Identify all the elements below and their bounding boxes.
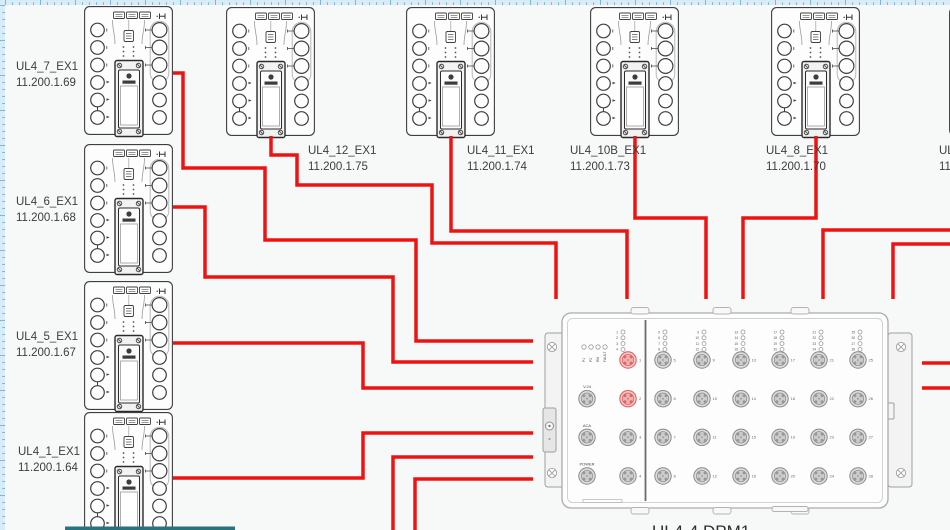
device-ul4-10b-ex1[interactable] <box>591 8 679 138</box>
device-label-ul4-12-ex1: UL4_12_EX1 11.200.1.75 <box>308 144 376 175</box>
status-led-p2 <box>589 345 593 349</box>
vertical-ruler <box>0 0 5 530</box>
status-led-p1 <box>582 345 586 349</box>
device-label-ul4-right-partial: UL 11 <box>939 144 950 175</box>
dpm-port-17[interactable] <box>772 352 788 368</box>
wire-right-offscreen-1[interactable] <box>823 230 950 299</box>
port-number: 15 <box>752 435 757 440</box>
device-label-ul4-7-ex1: UL4_7_EX1 11.200.1.69 <box>16 60 78 91</box>
wire-ul4-5-to-dpm[interactable] <box>173 343 533 388</box>
led-number: 8 <box>658 348 660 352</box>
dpm-port-28[interactable] <box>850 468 866 484</box>
device-label-ul4-6-ex1: UL4_6_EX1 11.200.1.68 <box>16 195 78 226</box>
dpm-port-22[interactable] <box>811 391 827 407</box>
dpm-port-3[interactable] <box>620 429 636 445</box>
partial-object-bottom-edge[interactable] <box>65 527 235 530</box>
dpm-port-2[interactable] <box>620 391 636 407</box>
dpm-port-v24[interactable] <box>579 391 595 407</box>
dpm-port-7[interactable] <box>655 429 671 445</box>
port-number: 28 <box>869 473 874 478</box>
dpm-port-26[interactable] <box>850 391 866 407</box>
port-number: 25 <box>869 357 874 362</box>
led-number: 2 <box>616 336 618 340</box>
dpm-port-aca[interactable] <box>579 429 595 445</box>
dpm-port-19[interactable] <box>772 429 788 445</box>
led-number: 11 <box>696 342 700 346</box>
device-label-ul4-5-ex1: UL4_5_EX1 11.200.1.67 <box>16 330 78 361</box>
device-ul4-7-ex1[interactable] <box>85 7 173 137</box>
led-number: 13 <box>734 330 738 334</box>
dpm-port-27[interactable] <box>850 429 866 445</box>
led-number: 23 <box>812 342 816 346</box>
port-number: 21 <box>830 357 835 362</box>
dpm-port-9[interactable] <box>694 352 710 368</box>
led-number: 22 <box>812 336 816 340</box>
device-ul4-1-ex1[interactable] <box>85 413 173 530</box>
port-number: 27 <box>869 435 874 440</box>
status-led-label: P1 <box>582 358 586 362</box>
led-number: 4 <box>616 348 618 352</box>
device-ul4-11-ex1[interactable] <box>407 8 495 138</box>
dpm-port-18[interactable] <box>772 391 788 407</box>
device-ul4-8-ex1[interactable] <box>772 8 860 138</box>
port-number: 17 <box>791 357 796 362</box>
device-ul4-12-ex1[interactable] <box>227 8 315 138</box>
led-number: 17 <box>773 330 777 334</box>
device-dpm1[interactable]: P1P2RMFAULT1234V.24ACAPOWER1234556677889… <box>543 308 912 515</box>
aux-port-label: POWER <box>579 462 594 467</box>
port-number: 22 <box>830 396 835 401</box>
dpm-port-power[interactable] <box>579 468 595 484</box>
port-number: 12 <box>713 473 718 478</box>
dpm-port-23[interactable] <box>811 429 827 445</box>
led-number: 19 <box>773 342 777 346</box>
wire-bottom-offscreen-2[interactable] <box>415 479 533 530</box>
port-number: 24 <box>830 473 835 478</box>
wire-right-offscreen-2[interactable] <box>893 244 950 299</box>
dpm-port-20[interactable] <box>772 468 788 484</box>
port-number: 23 <box>830 435 835 440</box>
port-number: 18 <box>791 396 796 401</box>
led-number: 24 <box>812 348 816 352</box>
led-number: 21 <box>812 330 816 334</box>
dpm-port-4[interactable] <box>620 468 636 484</box>
dpm-port-6[interactable] <box>655 391 671 407</box>
led-number: 1 <box>616 330 618 334</box>
dpm-port-5[interactable] <box>655 352 671 368</box>
led-number: 26 <box>851 336 855 340</box>
port-number: 16 <box>752 473 757 478</box>
dpm-port-1[interactable] <box>620 352 636 368</box>
led-number: 16 <box>734 348 738 352</box>
led-number: 7 <box>658 342 660 346</box>
port-number: 10 <box>713 396 718 401</box>
port-number: 20 <box>791 473 796 478</box>
led-number: 14 <box>734 336 738 340</box>
led-number: 15 <box>734 342 738 346</box>
led-number: 10 <box>695 336 699 340</box>
dpm-port-15[interactable] <box>733 429 749 445</box>
led-number: 5 <box>658 330 660 334</box>
led-number: 6 <box>658 336 660 340</box>
status-led-label: FAULT <box>603 352 607 362</box>
dpm-port-8[interactable] <box>655 468 671 484</box>
dpm-port-14[interactable] <box>733 391 749 407</box>
status-led-label: RM <box>596 357 600 362</box>
port-number: 13 <box>752 357 757 362</box>
device-label-ul4-8-ex1: UL4_8_EX1 11.200.1.70 <box>766 144 828 175</box>
dpm-port-12[interactable] <box>694 468 710 484</box>
led-number: 28 <box>851 348 855 352</box>
port-number: 26 <box>869 396 874 401</box>
dpm-port-16[interactable] <box>733 468 749 484</box>
device-ul4-5-ex1[interactable] <box>85 282 173 412</box>
dpm-port-10[interactable] <box>694 391 710 407</box>
dpm-port-21[interactable] <box>811 352 827 368</box>
led-number: 27 <box>851 342 855 346</box>
port-number: 19 <box>791 435 796 440</box>
device-ul4-6-ex1[interactable] <box>85 145 173 275</box>
aux-port-label: V.24 <box>583 384 592 389</box>
led-number: 9 <box>697 330 699 334</box>
horizontal-ruler <box>0 0 950 5</box>
diagram-scene: P1P2RMFAULT1234V.24ACAPOWER1234556677889… <box>0 0 950 530</box>
status-led-rm <box>596 345 600 349</box>
led-number: 20 <box>773 348 777 352</box>
dpm-device-label: UL4-4 DPM1 <box>652 522 750 530</box>
aux-port-label: ACA <box>583 423 592 428</box>
dpm-port-11[interactable] <box>694 429 710 445</box>
dpm-port-25[interactable] <box>850 352 866 368</box>
status-led-label: P2 <box>589 358 593 362</box>
led-number: 3 <box>616 342 618 346</box>
status-led-fault <box>603 345 607 349</box>
diagram-canvas[interactable]: P1P2RMFAULT1234V.24ACAPOWER1234556677889… <box>0 0 950 530</box>
led-number: 18 <box>773 336 777 340</box>
dpm-port-13[interactable] <box>733 352 749 368</box>
port-number: 14 <box>752 396 757 401</box>
led-number: 12 <box>695 348 699 352</box>
led-number: 25 <box>851 330 855 334</box>
device-label-ul4-10b-ex1: UL4_10B_EX1 11.200.1.73 <box>570 144 646 175</box>
device-label-ul4-11-ex1: UL4_11_EX1 11.200.1.74 <box>467 144 535 175</box>
device-label-ul4-1-ex1: UL4_1_EX1 11.200.1.64 <box>18 445 80 476</box>
dpm-port-24[interactable] <box>811 468 827 484</box>
